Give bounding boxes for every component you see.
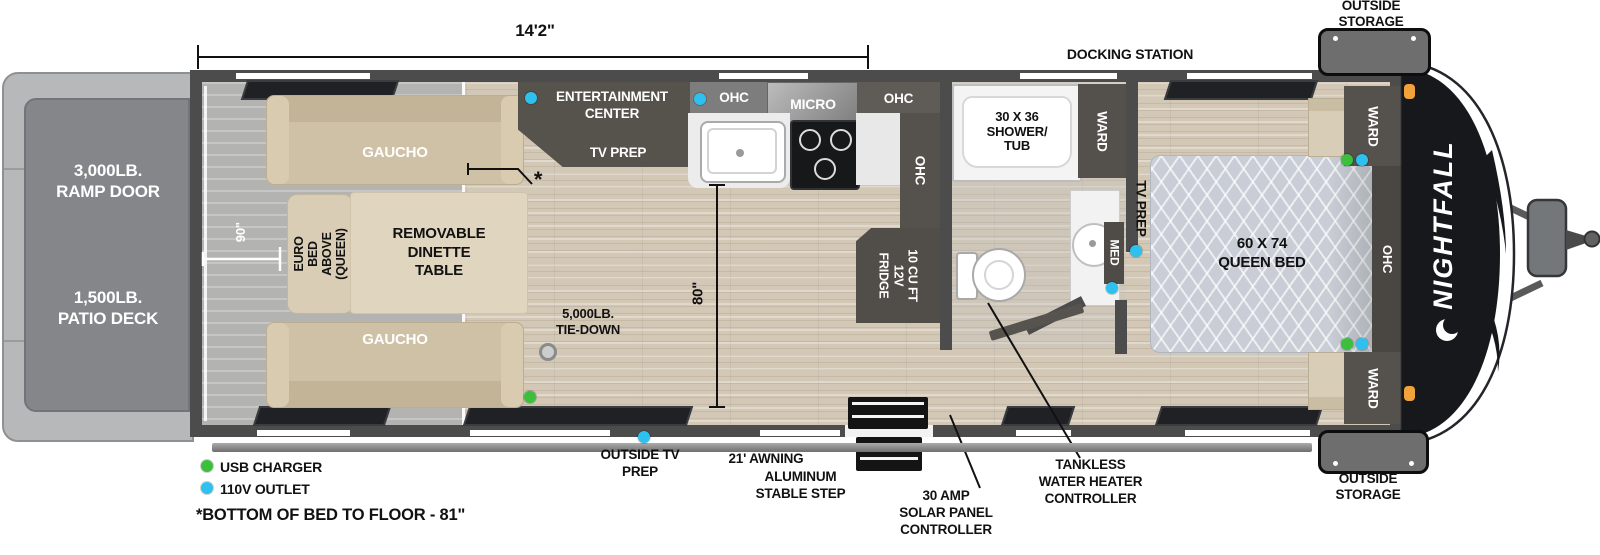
110v-outlet-dot [1356, 338, 1368, 350]
step-edge [852, 402, 924, 405]
garage-dimension-line [203, 247, 280, 271]
docking-station-label: DOCKING STATION [1050, 46, 1210, 64]
propane-cover [1528, 200, 1566, 276]
marker-light [1404, 386, 1415, 401]
step-edge [860, 457, 918, 460]
bed-height-dimension-line [468, 163, 532, 184]
outside-tv-prep-label: OUTSIDE TV PREP [585, 446, 695, 480]
floorplan-canvas: 3,000LB. RAMP DOOR 1,500LB. PATIO DECK G… [0, 0, 1600, 555]
tankless-controller-label: TANKLESS WATER HEATER CONTROLLER [1018, 456, 1163, 507]
entry-step-upper [848, 397, 928, 429]
usb-charger-dot [1341, 154, 1353, 166]
110v-outlet-dot [525, 92, 537, 104]
110v-outlet-dot [638, 431, 650, 443]
latch-dot [1333, 461, 1338, 466]
solar-controller-label: 30 AMP SOLAR PANEL CONTROLLER [885, 487, 1007, 538]
hitch-coupler [1566, 230, 1586, 250]
usb-charger-legend-label: USB CHARGER [220, 459, 360, 477]
step-edge [852, 415, 924, 418]
footnote-label: *BOTTOM OF BED TO FLOOR - 81" [196, 505, 516, 526]
hitch-ball [1585, 232, 1600, 247]
crescent-moon-icon [1443, 316, 1461, 334]
front-cap: NIGHTFALL [1402, 62, 1600, 444]
latch-dot [1411, 36, 1416, 41]
outlet-legend-dot [201, 482, 213, 494]
garage-dimension-text: 90" [233, 214, 249, 250]
brand-logo: NIGHTFALL [1428, 140, 1458, 309]
latch-dot [1333, 36, 1338, 41]
kitchen-dimension-text: 80" [690, 273, 709, 313]
latch-dot [1409, 461, 1414, 466]
marker-light [1404, 84, 1415, 99]
length-dimension-line [198, 45, 868, 69]
usb-charger-legend-dot [201, 460, 213, 472]
usb-charger-dot [524, 391, 536, 403]
outside-storage-box-top [1318, 28, 1431, 76]
outside-storage-bottom-label: OUTSIDE STORAGE [1305, 471, 1431, 503]
awning-label: 21' AWNING [706, 450, 826, 467]
garage-dimension-label: 90" [223, 224, 259, 240]
stable-step-label: ALUMINUM STABLE STEP [738, 468, 863, 502]
outside-storage-top-label: OUTSIDE STORAGE [1308, 0, 1434, 30]
asterisk-mark: * [528, 166, 548, 194]
110v-outlet-dot [1106, 282, 1118, 294]
110v-outlet-dot [1130, 245, 1142, 257]
length-dimension-label: 14'2" [495, 20, 575, 41]
outlet-legend-label: 110V OUTLET [220, 481, 360, 499]
110v-outlet-dot [1356, 154, 1368, 166]
usb-charger-dot [1341, 338, 1353, 350]
outside-storage-box-bottom [1318, 430, 1429, 474]
110v-outlet-dot [694, 93, 706, 105]
tankless-pointer-line [988, 303, 1080, 458]
kitchen-dimension-label: 80" [679, 284, 719, 302]
